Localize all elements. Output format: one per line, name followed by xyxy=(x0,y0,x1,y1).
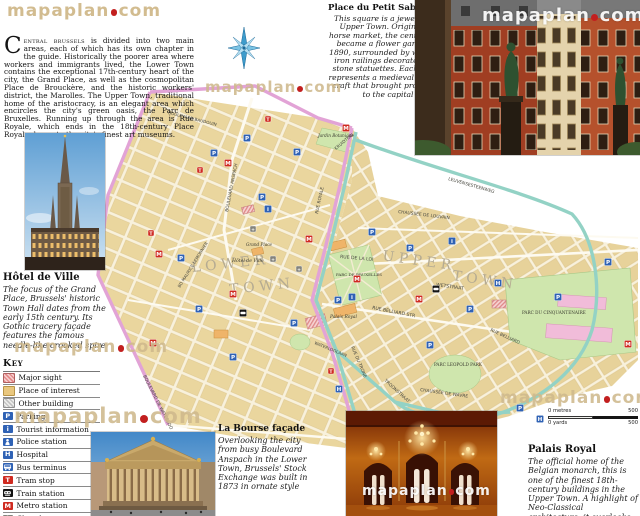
svg-text:+: + xyxy=(297,267,301,273)
legend-row-metro-station: MMetro station xyxy=(3,500,100,513)
map-icon-P: P xyxy=(243,134,250,142)
map-icon-P: P xyxy=(195,305,202,313)
page: L O W E RT O W NU P P E RT O W NBOULEVAR… xyxy=(0,0,640,516)
svg-text:P: P xyxy=(295,150,299,156)
svg-text:P: P xyxy=(408,246,412,252)
legend-label: Tram stop xyxy=(17,476,55,485)
map-icon-P: P xyxy=(210,149,217,157)
scale-yards-max: 500 xyxy=(628,420,638,427)
map-icon-church: + xyxy=(270,256,276,263)
parking-icon: P xyxy=(3,412,13,420)
map-icon-train xyxy=(239,309,246,316)
legend-row-other-building: Other building xyxy=(3,398,100,411)
map-icon-M: M xyxy=(415,295,422,303)
svg-text:P: P xyxy=(197,307,201,313)
bus-terminus-icon xyxy=(3,463,13,471)
map-icon-tram: T xyxy=(148,230,154,237)
drop-cap: C xyxy=(4,37,24,56)
map-icon-church: + xyxy=(296,266,302,273)
svg-text:+: + xyxy=(251,227,255,233)
la-bourse-block: La Bourse façade Overlooking the city fr… xyxy=(218,424,311,492)
legend-row-train-station: Train station xyxy=(3,487,100,500)
map-icon-M: M xyxy=(149,339,156,347)
svg-text:H: H xyxy=(337,387,342,393)
svg-text:P: P xyxy=(260,195,264,201)
svg-text:P: P xyxy=(518,406,522,412)
legend-label: Train station xyxy=(17,489,65,498)
palais-royal-title: Palais Royal xyxy=(528,444,638,455)
map-icon-P: P xyxy=(334,296,341,304)
map-icon-train xyxy=(432,285,439,292)
compass-rose-icon xyxy=(224,26,264,70)
legend-row-major-sight: Major sight xyxy=(3,372,100,385)
intro-paragraph: Central brussels is divided into two mai… xyxy=(4,37,194,138)
site-logo: mapaplancom xyxy=(7,1,161,21)
svg-text:M: M xyxy=(230,292,236,298)
map-icon-tram: T xyxy=(265,116,271,123)
legend-label: Hospital xyxy=(17,450,49,459)
hotel-de-ville-caption: The focus of the Grand Place, Brussels' … xyxy=(3,285,115,350)
legend-row-place-of-interest: Place of interest xyxy=(3,385,100,398)
map-icon-tram: T xyxy=(328,368,334,375)
hotel-de-ville-block: Hôtel de Ville The focus of the Grand Pl… xyxy=(3,272,115,350)
map-scale-bar: 0 metres500 0 yards500 xyxy=(548,408,638,427)
map-icon-H: H xyxy=(494,279,501,287)
map-icon-M: M xyxy=(155,250,162,258)
tram-stop-icon: T xyxy=(3,476,13,484)
legend-label: Metro station xyxy=(17,501,68,510)
map-icon-P: P xyxy=(426,341,433,349)
place-of-interest-icon xyxy=(3,386,15,396)
map-place-label: PARC LEOPOLD PARK xyxy=(434,362,483,367)
svg-text:P: P xyxy=(245,136,249,142)
svg-text:H: H xyxy=(538,417,543,423)
map-icon-i: i xyxy=(348,293,355,301)
svg-text:M: M xyxy=(225,161,231,167)
hotel-de-ville-photo xyxy=(25,133,105,270)
svg-text:i: i xyxy=(351,295,353,301)
map-icon-H: H xyxy=(335,385,342,393)
map-icon-M: M xyxy=(342,124,349,131)
scale-metres-zero: 0 metres xyxy=(548,408,571,415)
map-icon-P: P xyxy=(368,228,375,236)
map-icon-M: M xyxy=(224,159,231,167)
palais-royal-block: Palais Royal The official home of the Be… xyxy=(528,444,638,516)
map-icon-H: H xyxy=(536,415,543,423)
svg-text:H: H xyxy=(496,281,501,287)
scale-yards-zero: 0 yards xyxy=(548,420,567,427)
svg-text:M: M xyxy=(416,297,422,303)
map-icon-P: P xyxy=(554,293,561,301)
tourist-information-icon: i xyxy=(3,425,13,433)
major-sight-icon xyxy=(3,373,15,383)
map-place-label: Grand Place xyxy=(246,242,273,247)
train-station-icon xyxy=(3,489,13,497)
palais-royal-photo xyxy=(346,411,497,516)
map-place-label: Palais Royal xyxy=(329,315,357,320)
map-icon-P: P xyxy=(516,404,523,412)
svg-text:M: M xyxy=(625,342,631,348)
scale-bar-graphic xyxy=(548,416,638,419)
legend-row-tourist-information: iTourist information xyxy=(3,423,100,436)
map-icon-M: M xyxy=(353,275,360,283)
legend-label: Bus terminus xyxy=(17,463,67,472)
scale-metres-max: 500 xyxy=(628,408,638,415)
svg-text:i: i xyxy=(451,239,453,245)
svg-text:P: P xyxy=(231,355,235,361)
map-icon-M: M xyxy=(229,290,236,298)
la-bourse-caption: Overlooking the city from busy Boulevard… xyxy=(218,436,311,492)
petit-sablon-photo xyxy=(415,0,640,155)
legend-label: Police station xyxy=(17,437,67,446)
legend-row-hospital: HHospital xyxy=(3,449,100,462)
map-place-label: PARC DU CINQUANTENAIRE xyxy=(522,310,586,315)
legend-label: Major sight xyxy=(19,373,62,382)
svg-text:M: M xyxy=(156,252,162,258)
map-icon-i: i xyxy=(264,205,271,213)
svg-text:M: M xyxy=(343,126,349,132)
map-icon-P: P xyxy=(229,353,236,361)
map-icon-i: i xyxy=(448,237,455,245)
map-icon-M: M xyxy=(305,235,312,243)
palais-royal-caption: The official home of the Belgian monarch… xyxy=(528,457,638,516)
svg-text:P: P xyxy=(212,151,216,157)
police-station-icon xyxy=(3,438,13,446)
intro-body: is divided into two main areas, each of … xyxy=(4,36,194,139)
logo-text-post: com xyxy=(119,1,161,21)
legend-label: Other building xyxy=(19,399,74,408)
legend-row-parking: PParking xyxy=(3,410,100,423)
map-icon-church: + xyxy=(250,226,256,233)
svg-text:+: + xyxy=(271,257,275,263)
logo-text-pre: mapaplan xyxy=(7,1,109,21)
legend-row-bus-terminus: Bus terminus xyxy=(3,462,100,475)
map-icon-P: P xyxy=(177,254,184,262)
svg-text:P: P xyxy=(428,343,432,349)
other-building-icon xyxy=(3,398,15,408)
svg-text:P: P xyxy=(336,298,340,304)
svg-text:M: M xyxy=(354,277,360,283)
la-bourse-photo xyxy=(91,432,215,516)
legend-label: Parking xyxy=(17,412,46,421)
map-icon-P: P xyxy=(258,193,265,201)
map-icon-P: P xyxy=(406,244,413,252)
map-icon-P: P xyxy=(466,305,473,313)
red-dot-icon xyxy=(111,9,118,16)
map-icon-P: P xyxy=(604,258,611,266)
map-icon-P: P xyxy=(290,319,297,327)
map-icon-P: P xyxy=(293,148,300,156)
svg-text:P: P xyxy=(556,295,560,301)
svg-text:P: P xyxy=(370,230,374,236)
svg-text:i: i xyxy=(267,207,269,213)
map-icon-M: M xyxy=(624,340,631,348)
la-bourse-title: La Bourse façade xyxy=(218,424,311,434)
legend-row-police-station: Police station xyxy=(3,436,100,449)
map-place-label: Jardin Botanique xyxy=(317,133,354,138)
hotel-de-ville-title: Hôtel de Ville xyxy=(3,272,115,283)
legend-title: Key xyxy=(3,358,100,372)
legend-label: Place of interest xyxy=(19,386,80,395)
svg-text:P: P xyxy=(468,307,472,313)
hospital-icon: H xyxy=(3,451,13,459)
map-place-label: Hôtel de Ville xyxy=(231,257,264,264)
svg-text:P: P xyxy=(606,260,610,266)
svg-text:M: M xyxy=(306,237,312,243)
map-icon-tram: T xyxy=(197,167,203,174)
svg-text:M: M xyxy=(150,341,156,347)
svg-text:P: P xyxy=(292,321,296,327)
svg-text:P: P xyxy=(179,256,183,262)
legend-row-tram-stop: TTram stop xyxy=(3,474,100,487)
legend-label: Tourist information xyxy=(17,425,89,434)
metro-station-icon: M xyxy=(3,502,13,510)
map-key-legend: Key Major sightPlace of interestOther bu… xyxy=(3,358,100,516)
